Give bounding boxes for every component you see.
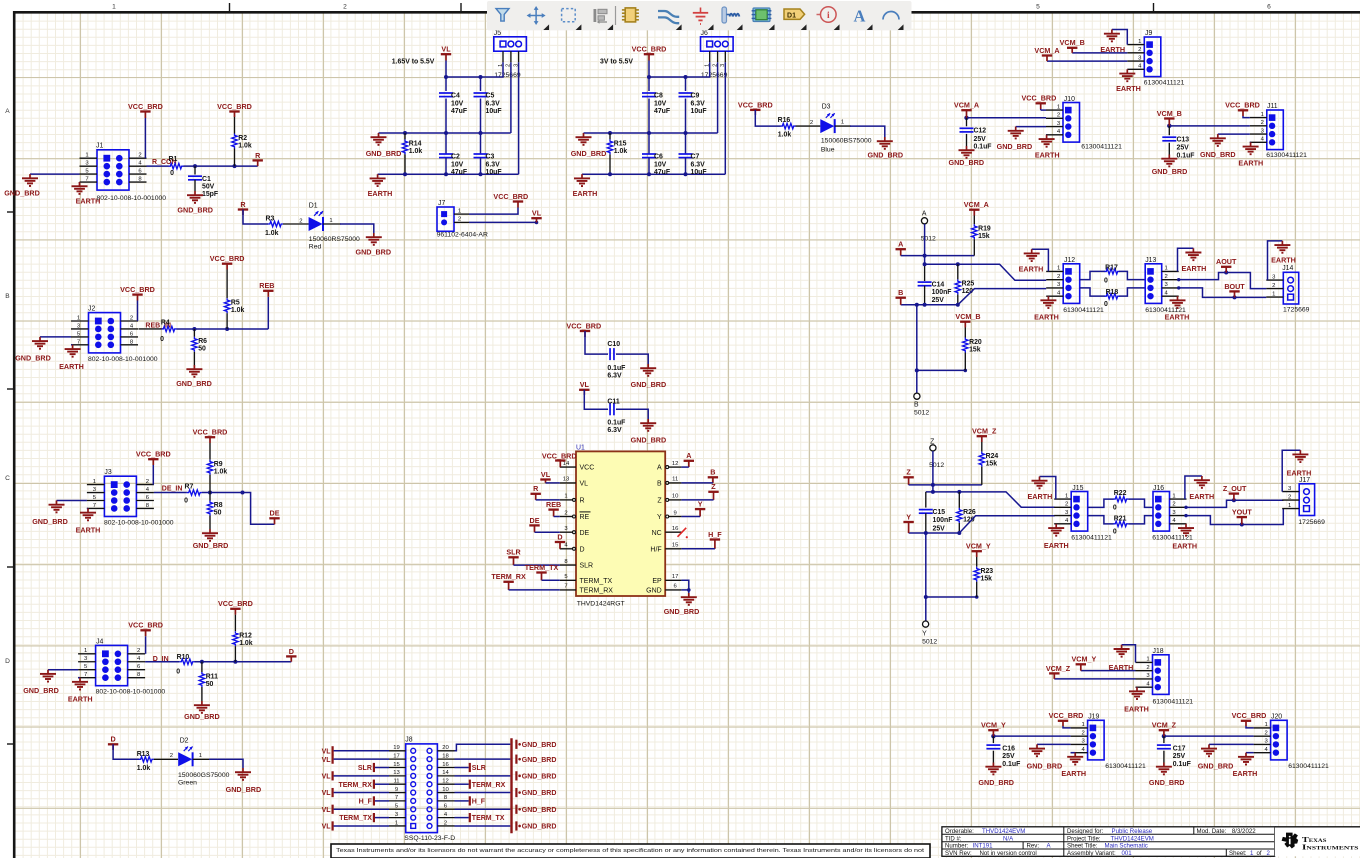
svg-text:2: 2 — [1288, 494, 1291, 500]
svg-text:J12: J12 — [1064, 257, 1075, 264]
svg-text:R11: R11 — [206, 673, 218, 680]
svg-text:R12: R12 — [239, 633, 252, 640]
svg-text:61300411121: 61300411121 — [1144, 80, 1185, 87]
svg-text:C2: C2 — [451, 154, 460, 161]
svg-text:14: 14 — [563, 461, 570, 467]
svg-text:R4: R4 — [161, 319, 170, 326]
svg-text:25V: 25V — [933, 525, 946, 532]
svg-text:EARTH: EARTH — [368, 189, 393, 198]
svg-text:GND_BRD: GND_BRD — [949, 158, 985, 167]
svg-text:15: 15 — [393, 762, 400, 768]
svg-text:0: 0 — [170, 170, 174, 177]
svg-text:6.3V: 6.3V — [607, 372, 622, 379]
svg-text:10V: 10V — [654, 161, 667, 168]
svg-text:DE: DE — [270, 509, 280, 518]
svg-text:Y: Y — [698, 500, 703, 509]
svg-text:7: 7 — [395, 795, 398, 801]
svg-text:6.3V: 6.3V — [607, 427, 622, 434]
svg-text:EARTH: EARTH — [1044, 541, 1069, 550]
svg-text:10V: 10V — [451, 161, 464, 168]
svg-text:SSQ-110-23-F-D: SSQ-110-23-F-D — [404, 835, 455, 842]
svg-text:R13: R13 — [137, 751, 150, 758]
svg-text:2: 2 — [458, 217, 461, 223]
svg-text:D: D — [110, 735, 115, 744]
svg-text:VCM_A: VCM_A — [964, 200, 989, 209]
svg-text:VCC_BRD: VCC_BRD — [566, 321, 601, 330]
svg-text:YOUT: YOUT — [1232, 508, 1253, 517]
svg-text:VCC_BRD: VCC_BRD — [1225, 101, 1260, 110]
svg-text:9: 9 — [674, 510, 677, 516]
svg-text:5012: 5012 — [914, 409, 929, 416]
svg-text:GND_BRD: GND_BRD — [997, 142, 1033, 151]
svg-text:VL: VL — [441, 45, 451, 54]
svg-text:47uF: 47uF — [654, 169, 670, 176]
svg-text:0.1uF: 0.1uF — [1002, 761, 1020, 768]
svg-text:2: 2 — [1057, 274, 1060, 280]
svg-text:C5: C5 — [486, 93, 495, 100]
svg-text:1: 1 — [1288, 503, 1291, 509]
svg-text:Texas Instruments and/or its l: Texas Instruments and/or its licensors d… — [336, 848, 925, 854]
svg-text:H_F: H_F — [472, 799, 486, 806]
svg-text:EARTH: EARTH — [68, 695, 93, 704]
svg-text:EARTH: EARTH — [1061, 769, 1086, 778]
svg-text:GND: GND — [646, 588, 662, 595]
svg-text:J18: J18 — [1153, 648, 1164, 655]
svg-text:AOUT: AOUT — [1216, 257, 1237, 266]
svg-text:EARTH: EARTH — [1189, 492, 1214, 501]
svg-text:GND_BRD: GND_BRD — [868, 151, 904, 160]
svg-text:6.3V: 6.3V — [691, 100, 706, 107]
svg-text:2: 2 — [170, 753, 173, 759]
svg-text:J4: J4 — [96, 639, 103, 646]
svg-text:VCM_Y: VCM_Y — [966, 542, 991, 551]
svg-text:H/F: H/F — [650, 546, 661, 553]
svg-text:VCC_BRD: VCC_BRD — [128, 102, 163, 111]
svg-text:1.65V to 5.5V: 1.65V to 5.5V — [392, 59, 435, 66]
svg-text:1: 1 — [112, 4, 116, 11]
svg-text:GND_BRD: GND_BRD — [978, 778, 1014, 787]
svg-text:C10: C10 — [607, 341, 620, 348]
svg-text:1: 1 — [329, 218, 332, 224]
svg-text:J11: J11 — [1267, 103, 1278, 110]
svg-text:0.1uF: 0.1uF — [607, 419, 625, 426]
svg-text:10V: 10V — [451, 100, 464, 107]
svg-text:15: 15 — [672, 543, 679, 549]
svg-text:25V: 25V — [974, 136, 987, 143]
svg-text:D: D — [557, 532, 562, 541]
svg-text:R14: R14 — [409, 141, 422, 148]
svg-text:N/A: N/A — [1003, 836, 1014, 843]
svg-text:VCM_Z: VCM_Z — [1152, 721, 1177, 730]
svg-text:GND_BRD: GND_BRD — [1198, 762, 1234, 771]
svg-text:VCC_BRD: VCC_BRD — [632, 45, 667, 54]
svg-text:VL: VL — [580, 481, 589, 488]
svg-text:TERM_TX: TERM_TX — [580, 578, 613, 585]
svg-text:10uF: 10uF — [691, 169, 707, 176]
svg-text:R7: R7 — [185, 483, 194, 490]
svg-text:C8: C8 — [654, 93, 663, 100]
svg-text:001: 001 — [1122, 850, 1133, 857]
svg-text:C: C — [5, 475, 10, 482]
svg-text:SLR: SLR — [506, 548, 521, 557]
svg-text:14: 14 — [442, 770, 449, 776]
svg-text:THVD1424EVM: THVD1424EVM — [982, 828, 1025, 835]
svg-text:R8: R8 — [214, 502, 223, 509]
svg-text:2: 2 — [1146, 665, 1149, 671]
svg-text:EARTH: EARTH — [1034, 313, 1059, 322]
svg-text:GND_BRD: GND_BRD — [664, 607, 700, 616]
svg-text:VCC_BRD: VCC_BRD — [218, 599, 253, 608]
svg-text:Project Title:: Project Title: — [1067, 836, 1101, 843]
svg-text:GND_BRD: GND_BRD — [184, 712, 220, 721]
svg-text:VL: VL — [322, 790, 332, 797]
svg-text:Rev:: Rev: — [1027, 843, 1040, 850]
svg-text:VCM_B: VCM_B — [1157, 109, 1182, 118]
svg-text:BOUT: BOUT — [1224, 282, 1245, 291]
svg-text:R22: R22 — [1114, 490, 1127, 497]
svg-text:RE: RE — [580, 514, 590, 521]
svg-text:1725669: 1725669 — [701, 72, 728, 79]
svg-text:TERM_TX: TERM_TX — [472, 815, 505, 822]
svg-text:TERM_RX: TERM_RX — [580, 588, 614, 595]
svg-text:1: 1 — [1138, 39, 1141, 45]
svg-text:R23: R23 — [981, 568, 994, 575]
svg-text:1.0k: 1.0k — [409, 148, 423, 155]
svg-text:15k: 15k — [981, 576, 993, 583]
svg-text:EARTH: EARTH — [1019, 265, 1044, 274]
svg-text:13: 13 — [393, 770, 400, 776]
svg-text:R18: R18 — [1106, 289, 1119, 296]
svg-text:C15: C15 — [933, 509, 946, 516]
svg-text:1: 1 — [93, 479, 96, 485]
svg-text:VL: VL — [322, 748, 332, 755]
svg-text:VCC_BRD: VCC_BRD — [1049, 711, 1084, 720]
svg-text:100nF: 100nF — [932, 289, 952, 296]
svg-text:TERM_RX: TERM_RX — [491, 572, 526, 581]
svg-text:GND_BRD: GND_BRD — [522, 824, 557, 831]
svg-text:1725669: 1725669 — [494, 72, 521, 79]
svg-text:VCC_BRD: VCC_BRD — [738, 100, 773, 109]
svg-text:GND_BRD: GND_BRD — [522, 757, 557, 764]
svg-text:1: 1 — [1146, 657, 1149, 663]
svg-text:VCC_BRD: VCC_BRD — [493, 192, 528, 201]
svg-text:8/3/2022: 8/3/2022 — [1232, 828, 1256, 835]
svg-text:2: 2 — [1065, 502, 1068, 508]
svg-text:Designed for:: Designed for: — [1067, 828, 1104, 835]
svg-text:17: 17 — [393, 753, 400, 759]
svg-text:J9: J9 — [1145, 30, 1152, 37]
svg-text:U1: U1 — [576, 445, 585, 452]
svg-text:R1: R1 — [169, 156, 178, 163]
svg-text:17: 17 — [672, 574, 679, 580]
svg-text:GND_BRD: GND_BRD — [1149, 778, 1185, 787]
svg-text:0: 0 — [176, 669, 180, 676]
svg-text:VCM_B: VCM_B — [955, 312, 980, 321]
svg-text:Z_OUT: Z_OUT — [1223, 484, 1247, 493]
svg-text:EARTH: EARTH — [1165, 313, 1190, 322]
svg-text:2: 2 — [299, 218, 302, 224]
svg-text:2: 2 — [1172, 502, 1175, 508]
svg-text:THVD1424EVM: THVD1424EVM — [1111, 836, 1154, 843]
svg-text:1: 1 — [1172, 493, 1175, 499]
svg-text:7: 7 — [93, 503, 96, 509]
svg-text:EARTH: EARTH — [59, 362, 84, 371]
svg-text:2: 2 — [130, 315, 133, 321]
svg-text:2: 2 — [138, 153, 141, 159]
svg-text:A: A — [854, 7, 866, 26]
svg-text:7: 7 — [77, 339, 80, 345]
svg-text:1.0k: 1.0k — [238, 142, 252, 149]
svg-text:REB: REB — [546, 500, 561, 509]
svg-text:1.0k: 1.0k — [614, 148, 628, 155]
svg-text:TID #:: TID #: — [945, 836, 962, 843]
svg-text:2: 2 — [1261, 120, 1264, 126]
svg-text:B: B — [710, 468, 715, 477]
svg-text:5012: 5012 — [929, 462, 944, 469]
svg-text:61300411121: 61300411121 — [1153, 698, 1194, 705]
svg-text:2: 2 — [1057, 113, 1060, 119]
svg-text:A: A — [5, 108, 10, 115]
svg-text:R16: R16 — [778, 117, 791, 124]
svg-text:GND_BRD: GND_BRD — [631, 380, 667, 389]
svg-text:NC: NC — [652, 530, 662, 537]
svg-text:C12: C12 — [974, 128, 987, 135]
svg-text:Orderable:: Orderable: — [945, 828, 974, 835]
svg-text:of: of — [1257, 850, 1262, 857]
svg-text:0: 0 — [1113, 505, 1117, 512]
svg-text:12: 12 — [672, 461, 679, 467]
svg-text:J8: J8 — [405, 737, 412, 744]
svg-text:1.0k: 1.0k — [265, 230, 279, 237]
svg-text:2: 2 — [1264, 730, 1267, 736]
svg-text:GND_BRD: GND_BRD — [15, 353, 51, 362]
svg-text:Number:: Number: — [945, 843, 969, 850]
svg-text:D2: D2 — [180, 737, 189, 744]
svg-text:EARTH: EARTH — [573, 189, 598, 198]
svg-text:1.0k: 1.0k — [231, 307, 245, 314]
svg-text:2: 2 — [146, 479, 149, 485]
svg-text:100nF: 100nF — [933, 517, 953, 524]
svg-text:0.1uF: 0.1uF — [1177, 153, 1195, 160]
svg-text:GND_BRD: GND_BRD — [366, 149, 402, 158]
svg-text:61300411121: 61300411121 — [1081, 144, 1122, 151]
svg-text:J2: J2 — [88, 306, 95, 313]
svg-text:5: 5 — [1036, 4, 1040, 11]
svg-text:15k: 15k — [978, 233, 990, 240]
svg-text:GND_BRD: GND_BRD — [1200, 150, 1236, 159]
svg-text:EARTH: EARTH — [76, 525, 101, 534]
svg-text:R24: R24 — [986, 453, 999, 460]
svg-text:D1: D1 — [787, 12, 796, 19]
svg-text:1: 1 — [1272, 291, 1275, 297]
svg-text:VCC_BRD: VCC_BRD — [120, 285, 155, 294]
svg-text:1: 1 — [199, 753, 202, 759]
svg-text:Blue: Blue — [821, 147, 835, 154]
svg-text:25V: 25V — [1002, 753, 1015, 760]
svg-text:VCC_BRD: VCC_BRD — [210, 254, 245, 263]
svg-text:A: A — [686, 451, 691, 460]
svg-text:D1: D1 — [309, 202, 318, 209]
svg-text:C4: C4 — [451, 93, 460, 100]
svg-text:EARTH: EARTH — [1124, 705, 1149, 714]
svg-text:GND_BRD: GND_BRD — [522, 742, 557, 749]
svg-text:R2: R2 — [238, 135, 247, 142]
svg-text:1: 1 — [84, 648, 87, 654]
svg-text:Y: Y — [906, 512, 911, 521]
svg-text:VCC: VCC — [580, 465, 595, 472]
svg-text:Z: Z — [711, 482, 716, 491]
svg-text:15pF: 15pF — [202, 191, 218, 198]
svg-text:EARTH: EARTH — [1116, 84, 1141, 93]
svg-text:J20: J20 — [1271, 714, 1282, 721]
svg-text:GND_BRD: GND_BRD — [522, 773, 557, 780]
svg-text:61300411121: 61300411121 — [1105, 763, 1146, 770]
svg-text:Public Release: Public Release — [1112, 828, 1153, 835]
svg-text:VCM_Z: VCM_Z — [1046, 664, 1071, 673]
svg-text:1: 1 — [77, 315, 80, 321]
svg-text:61300411121: 61300411121 — [1288, 763, 1329, 770]
svg-text:VL: VL — [580, 380, 590, 389]
svg-text:EARTH: EARTH — [76, 197, 101, 206]
svg-text:EARTH: EARTH — [1028, 492, 1053, 501]
svg-text:GND_BRD: GND_BRD — [177, 206, 213, 215]
svg-text:Sheet Title:: Sheet Title: — [1067, 843, 1098, 850]
svg-text:1: 1 — [85, 153, 88, 159]
svg-text:10uF: 10uF — [691, 108, 707, 115]
svg-text:B: B — [898, 288, 903, 297]
svg-text:VCC_BRD: VCC_BRD — [1022, 94, 1057, 103]
svg-text:C7: C7 — [691, 154, 700, 161]
svg-text:A: A — [898, 240, 903, 249]
svg-text:2: 2 — [1165, 274, 1168, 280]
svg-text:10uF: 10uF — [486, 108, 502, 115]
svg-text:Green: Green — [178, 779, 197, 786]
svg-text:3V to 5.5V: 3V to 5.5V — [600, 59, 633, 66]
svg-text:R19: R19 — [978, 226, 991, 233]
svg-text:C1: C1 — [202, 176, 211, 183]
svg-text:C13: C13 — [1177, 137, 1190, 144]
svg-text:150060GS75000: 150060GS75000 — [178, 772, 230, 779]
svg-text:TERM_TX: TERM_TX — [525, 563, 559, 572]
svg-text:VCM_Z: VCM_Z — [972, 427, 997, 436]
svg-text:VL: VL — [322, 773, 332, 780]
svg-text:1.0k: 1.0k — [137, 765, 151, 772]
svg-text:13: 13 — [563, 477, 570, 483]
svg-text:50V: 50V — [202, 184, 215, 191]
svg-text:GND_BRD: GND_BRD — [32, 517, 68, 526]
svg-text:VCC_BRD: VCC_BRD — [542, 451, 577, 460]
svg-text:Red: Red — [309, 243, 322, 250]
svg-text:C9: C9 — [691, 93, 700, 100]
svg-text:VCC_BRD: VCC_BRD — [193, 428, 228, 437]
svg-text:15k: 15k — [986, 460, 998, 467]
svg-text:11: 11 — [393, 779, 399, 785]
svg-text:EARTH: EARTH — [1035, 150, 1060, 159]
svg-text:Mod. Date:: Mod. Date: — [1197, 828, 1227, 835]
svg-text:REB: REB — [259, 281, 274, 290]
svg-text:2: 2 — [444, 820, 447, 826]
svg-text:1.0k: 1.0k — [778, 132, 792, 139]
svg-text:R9: R9 — [214, 461, 223, 468]
svg-text:D: D — [580, 546, 585, 553]
svg-text:1: 1 — [395, 820, 398, 826]
svg-text:R17: R17 — [1105, 264, 1118, 271]
svg-text:2: 2 — [1138, 47, 1141, 53]
svg-text:D3: D3 — [822, 103, 831, 110]
svg-text:GND_BRD: GND_BRD — [23, 686, 59, 695]
svg-text:TERM_TX: TERM_TX — [339, 815, 372, 822]
svg-text:802-10-008-10-001000: 802-10-008-10-001000 — [88, 356, 158, 363]
svg-text:B: B — [657, 481, 662, 488]
svg-text:VCC_BRD: VCC_BRD — [217, 102, 252, 111]
svg-text:0: 0 — [184, 497, 188, 504]
svg-text:J17: J17 — [1299, 477, 1310, 484]
svg-text:802-10-008-10-001000: 802-10-008-10-001000 — [104, 520, 174, 527]
svg-text:GND_BRD: GND_BRD — [1152, 167, 1188, 176]
svg-text:Z: Z — [657, 498, 662, 505]
svg-text:2: 2 — [343, 4, 347, 11]
svg-text:Y: Y — [922, 631, 927, 638]
svg-text:1: 1 — [564, 494, 567, 500]
svg-text:6.3V: 6.3V — [691, 161, 706, 168]
svg-text:1: 1 — [1057, 104, 1060, 110]
svg-text:TERM_RX: TERM_RX — [338, 782, 372, 789]
svg-text:J13: J13 — [1145, 257, 1156, 264]
svg-text:B: B — [5, 293, 10, 300]
svg-text:61300411121: 61300411121 — [1071, 535, 1112, 542]
svg-text:9: 9 — [395, 787, 398, 793]
svg-text:0: 0 — [1104, 301, 1108, 308]
svg-text:THVD1424RGT: THVD1424RGT — [577, 600, 625, 607]
svg-text:VL: VL — [322, 807, 332, 814]
svg-text:SLR: SLR — [358, 765, 372, 772]
svg-text:Sheet:: Sheet: — [1229, 850, 1247, 857]
svg-text:R: R — [533, 484, 539, 493]
svg-text:VCM_B: VCM_B — [1060, 38, 1085, 47]
svg-text:1: 1 — [1165, 266, 1168, 272]
svg-text:802-10-008-10-001000: 802-10-008-10-001000 — [97, 195, 167, 202]
svg-text:7: 7 — [85, 176, 88, 182]
svg-text:16: 16 — [442, 762, 449, 768]
svg-text:61300411121: 61300411121 — [1063, 307, 1104, 314]
svg-text:GND_BRD: GND_BRD — [522, 807, 557, 814]
svg-text:Assembly Variant:: Assembly Variant: — [1067, 850, 1116, 857]
svg-text:2: 2 — [137, 648, 140, 654]
svg-text:961102-6404-AR: 961102-6404-AR — [437, 232, 488, 239]
svg-text:VL: VL — [322, 824, 332, 831]
svg-text:i: i — [827, 11, 830, 21]
svg-text:C11: C11 — [607, 399, 619, 406]
svg-text:GND_BRD: GND_BRD — [176, 379, 212, 388]
svg-text:50: 50 — [214, 509, 222, 516]
svg-text:EP: EP — [652, 578, 662, 585]
svg-text:VCM_Y: VCM_Y — [981, 721, 1006, 730]
svg-text:A: A — [657, 465, 662, 472]
svg-text:VCM_Y: VCM_Y — [1072, 655, 1097, 664]
svg-text:2: 2 — [1081, 730, 1084, 736]
svg-text:Not in version control: Not in version control — [980, 850, 1037, 857]
svg-text:2: 2 — [1272, 283, 1275, 289]
svg-text:EARTH: EARTH — [1238, 158, 1263, 167]
svg-text:R6: R6 — [198, 338, 207, 345]
svg-text:GND_BRD: GND_BRD — [522, 790, 557, 797]
svg-text:INT191: INT191 — [973, 843, 994, 850]
svg-text:VCM_A: VCM_A — [954, 101, 979, 110]
svg-text:7: 7 — [564, 584, 567, 590]
svg-text:25V: 25V — [932, 297, 945, 304]
svg-text:GND_BRD: GND_BRD — [1027, 762, 1063, 771]
svg-text:DE: DE — [530, 516, 540, 525]
